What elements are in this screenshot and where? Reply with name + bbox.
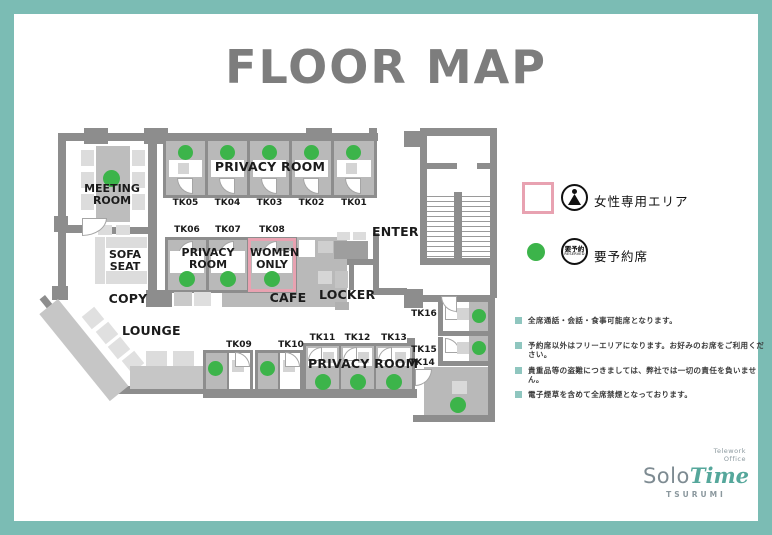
lounge-table	[146, 351, 167, 366]
seat-label-tk09: TK09	[217, 341, 261, 351]
booth-tk01	[334, 141, 374, 195]
sofa-seat-label: SOFA SEAT	[103, 249, 147, 273]
wall-pillar	[84, 128, 108, 144]
booth-tk05	[166, 141, 205, 195]
reserved-seat-dot	[386, 374, 402, 390]
booth-tk10	[255, 350, 303, 392]
seat-label-tk01: TK01	[334, 199, 374, 209]
reserved-seat-dot	[179, 271, 195, 287]
page-title: FLOOR MAP	[0, 40, 772, 94]
cafe-seat	[318, 241, 333, 253]
chair	[132, 150, 145, 166]
sofa	[106, 237, 147, 248]
brand-tagline: Telework Office	[640, 447, 752, 464]
wall-segment	[148, 133, 157, 303]
stairs-landing-wall	[477, 163, 497, 169]
privacy-room-bottom-label: PRIVACY ROOM	[308, 357, 410, 371]
stairs-landing-wall	[427, 163, 457, 169]
note-item: 全席通話・会話・食事可能席となります。	[515, 316, 767, 325]
note-text: 予約席以外はフリーエリアになります。お好みのお席をご利用ください。	[528, 341, 767, 359]
chair	[457, 308, 469, 320]
lounge-table	[173, 351, 194, 366]
reserved-seat-dot	[304, 145, 319, 160]
wall-segment	[373, 288, 407, 295]
meeting-room-label: MEETING ROOM	[76, 183, 148, 207]
chair	[457, 342, 469, 354]
note-bullet-icon	[515, 317, 522, 324]
note-text: 全席通話・会話・食事可能席となります。	[528, 316, 677, 325]
seat-label-tk04: TK04	[208, 199, 247, 209]
reserved-icon-en-text: RESERVED	[564, 252, 584, 257]
seat-label-tk12: TK12	[341, 334, 374, 344]
stairs-wall	[420, 128, 497, 136]
lounge-label: LOUNGE	[122, 324, 176, 338]
enter-label: ENTER	[372, 225, 418, 239]
reserved-seat-dot	[260, 361, 275, 376]
privacy-room-top-label: PRIVACY ROOM	[205, 160, 335, 174]
women-only-legend-label: 女性専用エリア	[594, 191, 689, 210]
reserved-seat-dot	[472, 309, 486, 323]
seat-label-tk06: TK06	[168, 226, 206, 236]
cafe-seat	[318, 271, 332, 284]
wall-segment	[488, 295, 495, 422]
door-arc-icon	[177, 178, 193, 194]
booth-tk09	[203, 350, 253, 392]
door-arc-icon	[345, 178, 361, 194]
note-item: 予約席以外はフリーエリアになります。お好みのお席をご利用ください。	[515, 341, 767, 359]
stairs-wall	[420, 258, 497, 265]
note-bullet-icon	[515, 342, 522, 349]
wall-segment	[438, 361, 495, 366]
note-text: 電子煙草を含めて全席禁煙となっております。	[528, 390, 692, 399]
brand-logo: Telework Office SoloTime TSURUMI	[640, 447, 752, 499]
chair	[81, 150, 94, 166]
reserved-legend-label: 要予約席	[594, 246, 648, 265]
seat-label-tk08: TK08	[250, 226, 294, 236]
brand-location: TSURUMI	[640, 490, 752, 499]
wall-pillar	[52, 286, 68, 300]
chair	[337, 232, 350, 240]
female-icon	[561, 184, 588, 211]
cafe-label: CAFE	[264, 291, 312, 305]
seat-label-tk13: TK13	[376, 334, 412, 344]
printer-unit	[194, 292, 211, 306]
copy-label: COPY	[108, 292, 148, 306]
copier	[146, 290, 172, 307]
reserved-seat-dot	[220, 145, 235, 160]
stairs-wall	[420, 128, 427, 265]
reserved-seat-dot	[350, 374, 366, 390]
reserved-seat-dot	[450, 397, 466, 413]
seat-label-tk16: TK16	[410, 310, 438, 320]
seat-label-tk11: TK11	[306, 334, 339, 344]
wall-pillar	[404, 131, 422, 147]
seat-label-tk02: TK02	[292, 199, 331, 209]
chair	[346, 163, 357, 174]
note-bullet-icon	[515, 391, 522, 398]
wall-segment	[349, 263, 354, 290]
reserved-seat-dot	[315, 374, 331, 390]
women-only-label: WOMEN ONLY	[250, 247, 294, 271]
lounge-bench	[130, 366, 206, 389]
seat-label-tk05: TK05	[166, 199, 205, 209]
chair	[178, 163, 189, 174]
women-only-legend-swatch	[522, 182, 554, 214]
locker-label: LOCKER	[319, 288, 369, 302]
booth-tk15	[443, 336, 488, 361]
chair	[452, 381, 467, 394]
reserved-seat-dot	[208, 361, 223, 376]
cafe-counter	[299, 240, 315, 257]
reserved-legend-dot	[527, 243, 545, 261]
reserved-seat-dot	[472, 341, 486, 355]
wall-pillar	[54, 216, 68, 232]
entry-table	[334, 241, 368, 259]
chair	[353, 232, 366, 240]
door-arc-icon	[219, 178, 235, 194]
reserved-seat-dot	[262, 145, 277, 160]
note-item: 貴重品等の盗難につきましては、弊社では一切の責任を負いません。	[515, 366, 767, 384]
chair	[116, 225, 130, 235]
reservation-required-icon: 要予約 RESERVED	[561, 238, 588, 265]
stairs-wall	[490, 128, 497, 298]
locker-unit	[335, 271, 348, 288]
seat-label-tk03: TK03	[250, 199, 289, 209]
door-arc-icon	[261, 178, 277, 194]
locker-unit	[335, 302, 349, 310]
seat-label-tk07: TK07	[209, 226, 247, 236]
note-text: 貴重品等の盗難につきましては、弊社では一切の責任を負いません。	[528, 366, 767, 384]
door-arc-icon	[303, 178, 319, 194]
wall-segment	[413, 415, 495, 422]
seat-label-tk14: TK14	[408, 359, 436, 369]
printer-unit	[174, 292, 192, 306]
seat-label-tk15: TK15	[410, 346, 438, 356]
privacy-room-mid-label: PRIVACY ROOM	[168, 247, 248, 271]
note-item: 電子煙草を含めて全席禁煙となっております。	[515, 390, 767, 399]
floor-map-page: FLOOR MAP	[0, 0, 772, 535]
wall-segment	[58, 133, 66, 225]
reserved-seat-dot	[346, 145, 361, 160]
reserved-seat-dot	[220, 271, 236, 287]
brand-name: SoloTime	[640, 465, 752, 487]
reserved-seat-dot	[178, 145, 193, 160]
stairs-divider	[454, 192, 462, 260]
note-bullet-icon	[515, 367, 522, 374]
